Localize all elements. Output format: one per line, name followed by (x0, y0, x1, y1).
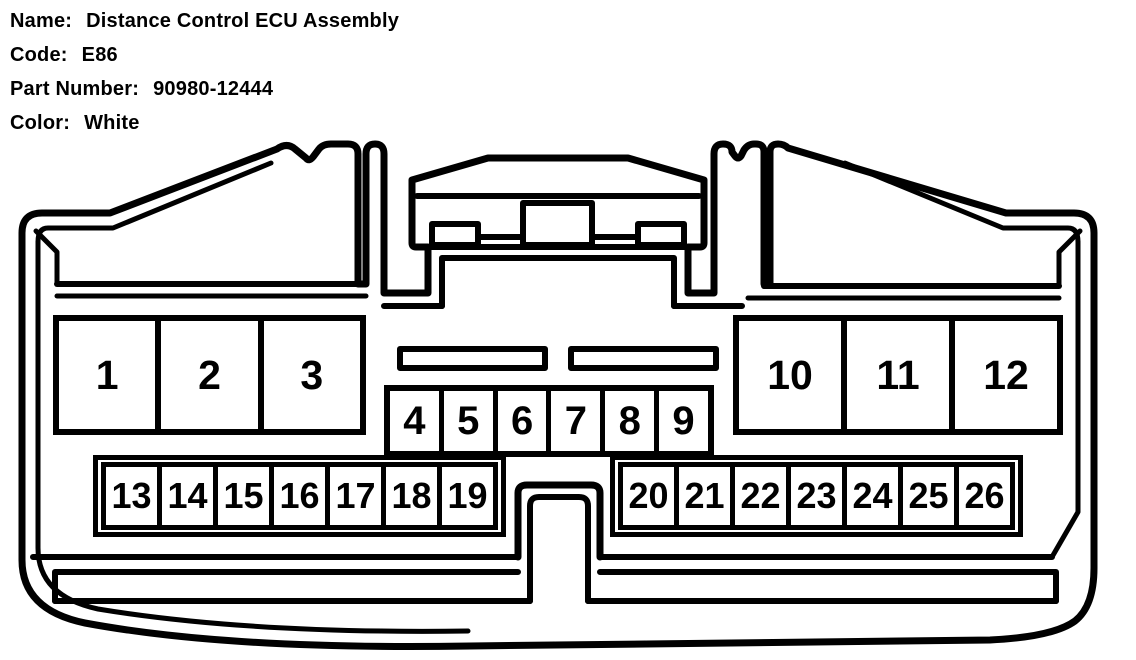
pin-row-bottom-right: 20212223242526 (618, 462, 1015, 530)
pin-cell-15: 15 (218, 467, 274, 525)
pin-cell-19: 19 (442, 467, 493, 525)
pin-cell-18: 18 (386, 467, 442, 525)
pin-cell-4: 4 (390, 391, 444, 451)
pin-row-top-left: 123 (53, 315, 366, 435)
page: Name: Distance Control ECU Assembly Code… (0, 0, 1136, 660)
pin-cell-14: 14 (162, 467, 218, 525)
pin-cell-7: 7 (551, 391, 605, 451)
pin-cell-21: 21 (679, 467, 735, 525)
pin-row-bottom-left: 13141516171819 (101, 462, 498, 530)
pin-row-top-right: 101112 (733, 315, 1063, 435)
pin-cell-12: 12 (955, 321, 1057, 429)
pin-cell-17: 17 (330, 467, 386, 525)
pin-cell-24: 24 (847, 467, 903, 525)
pin-cell-26: 26 (959, 467, 1010, 525)
pin-cell-25: 25 (903, 467, 959, 525)
pin-row-middle: 456789 (384, 385, 714, 457)
pin-cell-13: 13 (106, 467, 162, 525)
pin-cell-10: 10 (739, 321, 847, 429)
pin-cell-22: 22 (735, 467, 791, 525)
pin-cell-1: 1 (59, 321, 161, 429)
pin-cell-20: 20 (623, 467, 679, 525)
pin-cell-16: 16 (274, 467, 330, 525)
pin-cell-3: 3 (264, 321, 360, 429)
pin-cell-5: 5 (444, 391, 498, 451)
pin-cell-6: 6 (498, 391, 552, 451)
pin-cell-23: 23 (791, 467, 847, 525)
pin-cell-11: 11 (847, 321, 955, 429)
pin-cell-9: 9 (659, 391, 708, 451)
pin-cell-8: 8 (605, 391, 659, 451)
pin-cell-2: 2 (161, 321, 263, 429)
